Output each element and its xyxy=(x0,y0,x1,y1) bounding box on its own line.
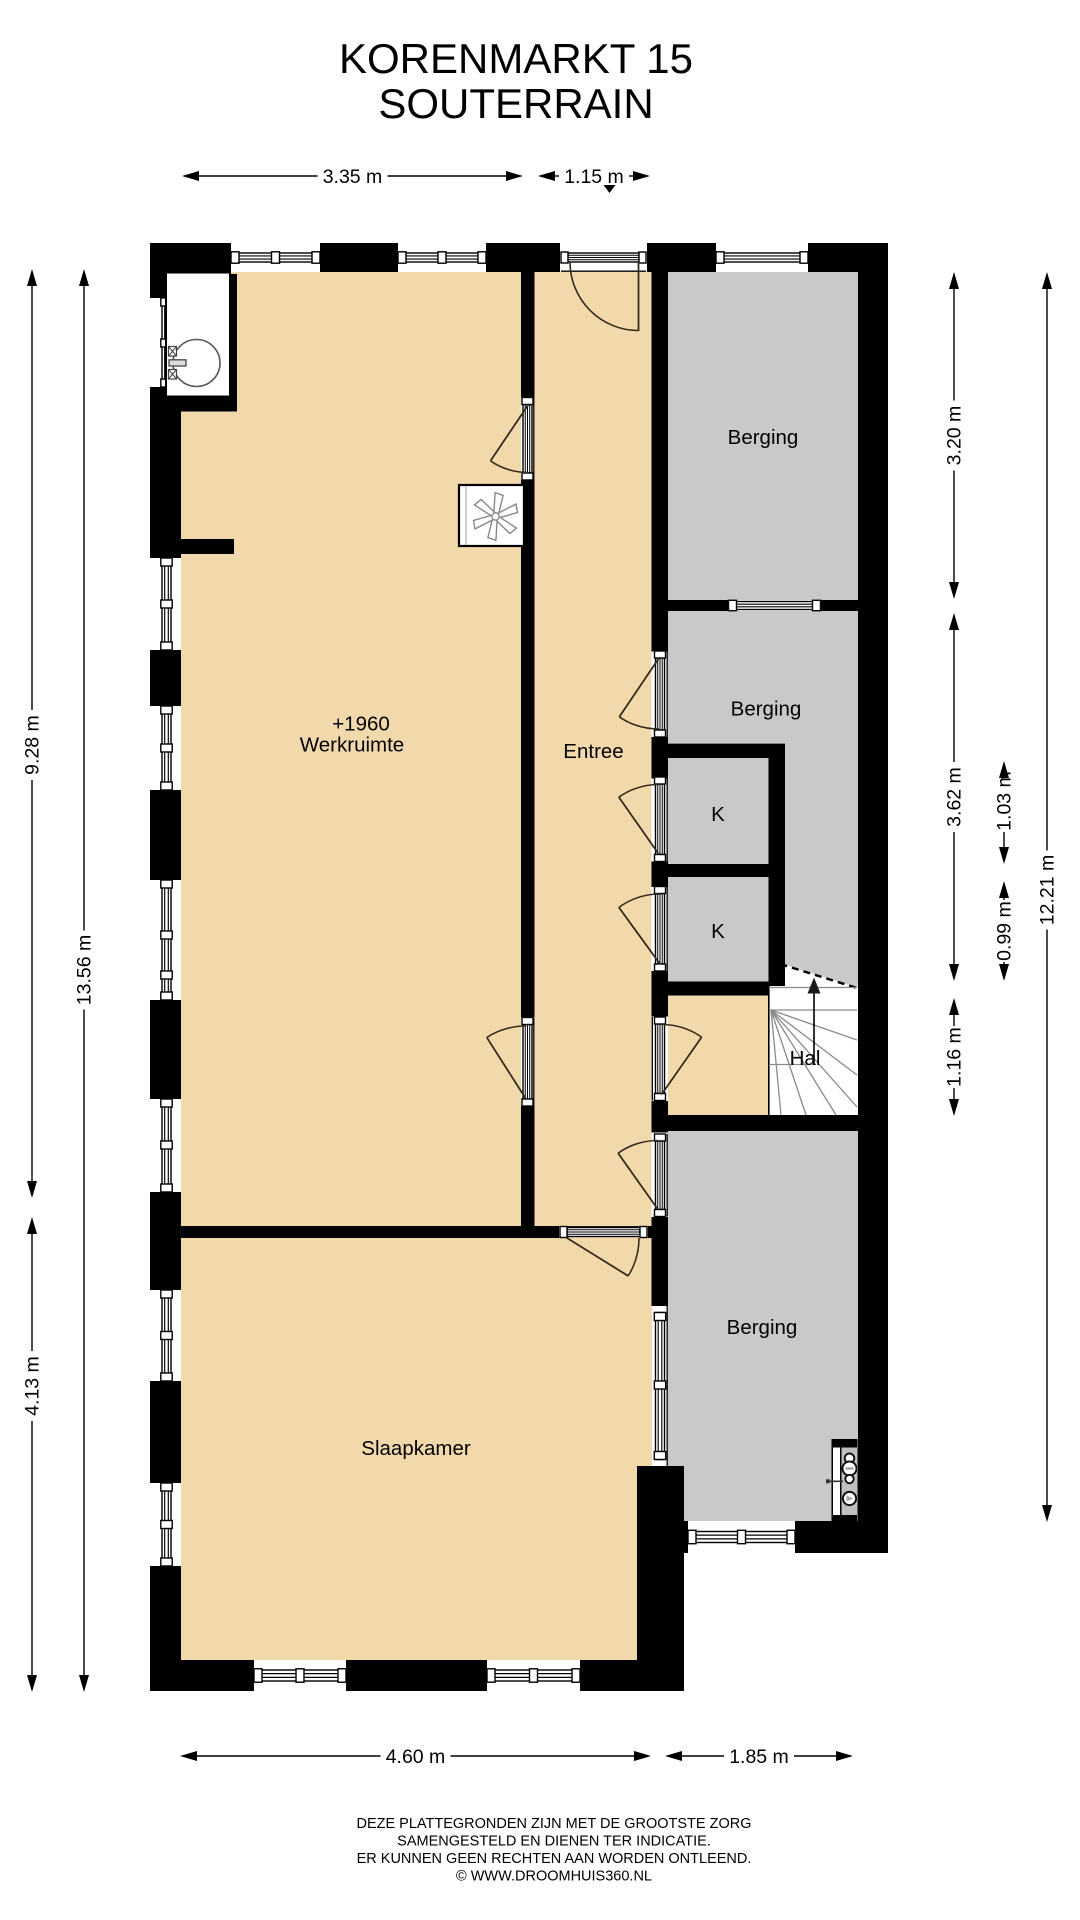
svg-text:Slaapkamer: Slaapkamer xyxy=(361,1437,471,1460)
svg-text:12.21 m: 12.21 m xyxy=(1037,855,1059,925)
svg-text:KORENMARKT 15: KORENMARKT 15 xyxy=(339,35,693,82)
svg-text:Entree: Entree xyxy=(563,740,623,763)
svg-text:SOUTERRAIN: SOUTERRAIN xyxy=(378,80,653,127)
svg-text:ER KUNNEN GEEN RECHTEN AAN WOR: ER KUNNEN GEEN RECHTEN AAN WORDEN ONTLEE… xyxy=(357,1851,752,1867)
svg-text:4.60 m: 4.60 m xyxy=(386,1746,446,1768)
svg-text:Werkruimte: Werkruimte xyxy=(300,734,404,757)
svg-text:© WWW.DROOMHUIS360.NL: © WWW.DROOMHUIS360.NL xyxy=(456,1869,652,1885)
svg-text:3.35 m: 3.35 m xyxy=(323,166,383,188)
svg-text:1.16 m: 1.16 m xyxy=(944,1027,966,1087)
svg-text:K: K xyxy=(711,920,725,943)
svg-text:3.62 m: 3.62 m xyxy=(944,767,966,827)
svg-text:Berging: Berging xyxy=(731,698,802,721)
svg-text:3.20 m: 3.20 m xyxy=(944,406,966,466)
svg-text:0.99 m: 0.99 m xyxy=(994,901,1016,961)
svg-text:Berging: Berging xyxy=(727,1316,798,1339)
svg-text:SAMENGESTELD EN DIENEN TER IND: SAMENGESTELD EN DIENEN TER INDICATIE. xyxy=(397,1834,711,1850)
svg-text:K: K xyxy=(711,803,725,826)
svg-text:13.56 m: 13.56 m xyxy=(74,935,96,1005)
svg-text:1.85 m: 1.85 m xyxy=(729,1746,789,1768)
svg-text:Berging: Berging xyxy=(728,426,799,449)
svg-text:Hal: Hal xyxy=(790,1047,821,1070)
svg-text:1.15 m: 1.15 m xyxy=(564,166,624,188)
svg-text:9.28 m: 9.28 m xyxy=(22,715,44,775)
svg-text:4.13 m: 4.13 m xyxy=(22,1356,44,1416)
svg-text:1.03 m: 1.03 m xyxy=(994,771,1016,831)
svg-text:+1960: +1960 xyxy=(332,713,390,736)
svg-text:DEZE PLATTEGRONDEN ZIJN MET DE: DEZE PLATTEGRONDEN ZIJN MET DE GROOTSTE … xyxy=(356,1816,751,1832)
